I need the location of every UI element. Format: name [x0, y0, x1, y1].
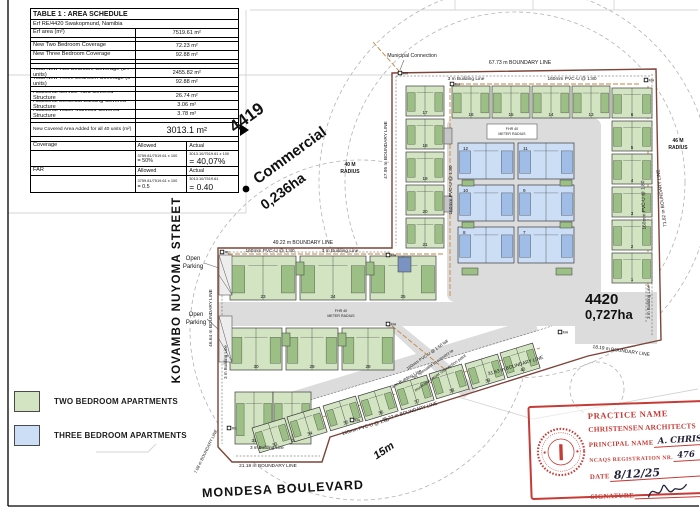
svg-text:24: 24	[330, 294, 336, 299]
manhole-marker: MH	[398, 71, 408, 75]
svg-text:MH: MH	[355, 418, 361, 422]
two-bed-block: 29	[286, 328, 338, 370]
manhole-marker: RE	[227, 426, 237, 430]
svg-text:12: 12	[463, 146, 469, 151]
service-structure	[560, 180, 572, 186]
svg-text:17: 17	[422, 110, 428, 115]
table-row: New Covered Area Added for all 40 units …	[31, 123, 238, 137]
manhole-marker: MH	[350, 418, 360, 422]
svg-text:MH: MH	[649, 78, 655, 82]
leader-line	[204, 263, 219, 268]
svg-text:7: 7	[523, 230, 526, 235]
plan-annotation: 3 m Building Line	[322, 248, 359, 254]
three-bed-block: 7	[518, 227, 574, 263]
svg-text:10: 10	[463, 188, 469, 193]
open-parking-area	[219, 255, 232, 295]
manhole-marker: MH	[644, 78, 654, 82]
table-row: Total New Three Bedroom Coverage (6 unit…	[31, 78, 238, 87]
svg-text:23: 23	[260, 294, 266, 299]
two-bed-swatch	[14, 391, 40, 412]
two-bed-block: 18	[406, 119, 444, 149]
plan-annotation: RADIUS	[668, 145, 688, 151]
three-bed-block: 11	[518, 143, 574, 179]
plan-annotation: 3 m Building Line	[448, 76, 485, 82]
table-row: Additional Electrical Building Covered S…	[31, 101, 238, 110]
svg-text:RE: RE	[225, 250, 231, 254]
legend-label: THREE BEDROOM APARTMENTS	[54, 431, 187, 440]
area-schedule-table: TABLE 1 : AREA SCHEDULEErf RE/4420 Swako…	[30, 8, 239, 193]
svg-text:MH: MH	[455, 82, 461, 86]
table-row: CoverageAllowedActual	[31, 142, 238, 151]
plan-annotation: 160mm PVC-U @ 1:80	[245, 248, 294, 254]
svg-text:16: 16	[468, 112, 474, 117]
two-bed-block: 6	[612, 88, 652, 118]
signature-label: SIGNATURE	[591, 492, 635, 501]
svg-text:4: 4	[631, 178, 634, 183]
two-bed-block: 20	[406, 185, 444, 215]
three-bed-block: 10	[458, 185, 514, 221]
three-bed-block: 9	[518, 185, 574, 221]
table-title: TABLE 1 : AREA SCHEDULE	[31, 11, 128, 18]
two-bed-block: 24	[300, 256, 366, 300]
plan-annotation: FHR 40	[335, 309, 347, 313]
architect-stamp: I PRACTICE NAME CHRISTENSEN ARCHITECTS P…	[527, 400, 700, 500]
practice-name-label: PRACTICE NAME	[588, 406, 700, 421]
svg-text:8: 8	[463, 230, 466, 235]
plan-annotation: Municipal Connection	[387, 53, 437, 59]
two-bed-block: 17	[406, 86, 444, 116]
plan-annotation: Parking	[183, 264, 203, 270]
table-row: 3759.81/7519.61 x 100= 50%3013.10/7519.6…	[31, 151, 238, 167]
erf-4420-area-label: 0,727ha	[585, 307, 633, 322]
plan-annotation: 49.22 m BOUNDARY LINE	[273, 240, 334, 246]
plan-annotation: 3 m Building Line	[250, 445, 284, 450]
svg-text:28: 28	[365, 364, 371, 369]
table-row: 3759.81/7519.61 x 100= 0.53013.10/7519.6…	[31, 176, 238, 192]
site-plan-drawing: 1615141317181920216543212324253029283132…	[0, 0, 700, 515]
plan-annotation: 40 M	[344, 162, 355, 168]
plan-annotation: Parking	[186, 320, 206, 326]
plan-annotation: 67.73 m BOUNDARY LINE	[489, 60, 552, 66]
date-label: DATE	[590, 473, 610, 481]
principal-name-label: PRINCIPAL NAME	[589, 440, 654, 449]
three-bed-block: 12	[458, 143, 514, 179]
table-row: Erf area (m²)7519.61 m²	[31, 29, 238, 38]
plan-annotation: FHR 40	[506, 127, 518, 131]
legend-item-two-bed: TWO BEDROOM APARTMENTS	[14, 391, 187, 412]
service-structure	[462, 180, 474, 186]
registration-value: 476	[673, 448, 700, 462]
svg-text:29: 29	[309, 364, 315, 369]
service-structure	[398, 257, 411, 272]
plan-annotation: 21.18 m BOUNDARY LINE	[239, 463, 297, 469]
svg-text:15: 15	[508, 112, 514, 117]
service-structure	[444, 128, 452, 144]
svg-text:I: I	[557, 439, 564, 465]
manhole-marker: MH	[386, 322, 396, 326]
table-row: TABLE 1 : AREA SCHEDULE	[31, 9, 238, 20]
two-bed-block: 23	[230, 256, 296, 300]
svg-text:RE: RE	[232, 426, 238, 430]
svg-text:MH: MH	[391, 322, 397, 326]
table-row: Total New Two Bedroom Coverage (34 units…	[31, 69, 238, 78]
manhole-marker: RE	[220, 250, 230, 254]
table-subtitle: Erf RE/4420 Swakopmund, Namibia	[31, 21, 123, 27]
signature-scribble	[634, 481, 700, 500]
svg-text:21: 21	[422, 242, 428, 247]
two-bed-block: 15	[492, 86, 530, 118]
two-bed-block: 19	[406, 152, 444, 182]
service-structure	[282, 333, 290, 346]
street-name-west: KOVAMBO NUYOMA STREET	[171, 197, 183, 384]
service-structure	[462, 268, 478, 275]
plan-annotation: 7.08 m BOUNDARY LINE	[193, 428, 219, 474]
two-bed-block: 28	[342, 328, 394, 370]
svg-text:11: 11	[523, 146, 528, 151]
plan-annotation: 160mm PVC-U @ 1:80	[547, 76, 596, 82]
svg-text:13: 13	[588, 112, 594, 117]
three-bed-block: 8	[458, 227, 514, 263]
plan-annotation: METER RADIUS	[327, 314, 355, 318]
table-row: Additional Service Yard Covered Structur…	[31, 92, 238, 101]
three-bed-swatch	[14, 425, 40, 446]
plan-annotation: 160mm PVC-U @ 1:80	[448, 165, 454, 214]
plan-annotation: 3 m Building Line	[223, 345, 228, 379]
two-bed-block: 1	[612, 253, 652, 283]
two-bed-block: 13	[572, 86, 610, 118]
manhole-marker: MH	[450, 82, 460, 86]
svg-text:MH: MH	[563, 330, 569, 334]
svg-text:14: 14	[548, 112, 554, 117]
table-row: New Three Bedroom Coverage92.88 m²	[31, 51, 238, 60]
svg-text:20: 20	[422, 209, 428, 214]
legend-label: TWO BEDROOM APARTMENTS	[54, 397, 178, 406]
svg-text:1: 1	[631, 277, 634, 282]
table-row: New Two Bedroom Coverage72.23 m²	[31, 42, 238, 51]
match-mark-dot	[243, 186, 250, 193]
leader-line	[400, 60, 404, 70]
service-structure	[296, 262, 304, 275]
svg-text:25: 25	[400, 294, 406, 299]
svg-text:2: 2	[631, 244, 634, 249]
service-structure	[462, 222, 474, 228]
two-bed-block: 5	[612, 121, 652, 151]
plan-annotation: 3 m Building Line	[646, 285, 651, 319]
registration-label: NCAQS REGISTRATION NR.	[589, 455, 673, 464]
service-structure	[366, 262, 374, 275]
two-bed-block: 30	[230, 328, 282, 370]
legend: TWO BEDROOM APARTMENTS THREE BEDROOM APA…	[14, 391, 187, 459]
svg-text:3: 3	[631, 211, 634, 216]
svg-text:MH: MH	[403, 71, 409, 75]
svg-text:30: 30	[253, 364, 259, 369]
svg-text:MH: MH	[391, 253, 397, 257]
legend-item-three-bed: THREE BEDROOM APARTMENTS	[14, 425, 187, 446]
service-structure	[556, 268, 572, 275]
erf-4420-label: 4420	[585, 291, 618, 308]
svg-text:9: 9	[523, 188, 526, 193]
svg-text:6: 6	[631, 112, 634, 117]
date-value: 8/12/25	[610, 462, 700, 482]
manhole-marker: MH	[558, 330, 568, 334]
plan-annotation: 47.95 m BOUNDARY LINE	[383, 121, 389, 179]
two-bed-block: 4	[612, 154, 652, 184]
plan-annotation: 46 M	[672, 138, 683, 144]
table-row: FARAllowedActual	[31, 167, 238, 176]
svg-text:5: 5	[631, 145, 634, 150]
plan-annotation: RADIUS	[340, 169, 360, 175]
plan-annotation: Open	[189, 312, 204, 318]
two-bed-block: 21	[406, 218, 444, 248]
service-structure	[338, 333, 346, 346]
two-bed-block: 16	[452, 86, 490, 118]
plan-annotation: Open	[186, 256, 201, 262]
table-row: Erf RE/4420 Swakopmund, Namibia	[31, 20, 238, 29]
svg-text:19: 19	[422, 176, 428, 181]
plan-annotation: 46.64 m BOUNDARY LINE	[208, 289, 214, 347]
plan-annotation: METER RADIUS	[498, 132, 526, 136]
institute-seal: I	[534, 409, 589, 495]
svg-text:18: 18	[422, 143, 428, 148]
service-structure	[560, 222, 572, 228]
manhole-marker: MH	[386, 253, 396, 257]
principal-name-value: A. CHRISTENSEN	[653, 432, 700, 447]
road	[218, 302, 602, 326]
table-row: Additional Water Manifold Covered Struct…	[31, 110, 238, 119]
practice-name-value: CHRISTENSEN ARCHITECTS	[588, 420, 700, 434]
two-bed-block: 14	[532, 86, 570, 118]
